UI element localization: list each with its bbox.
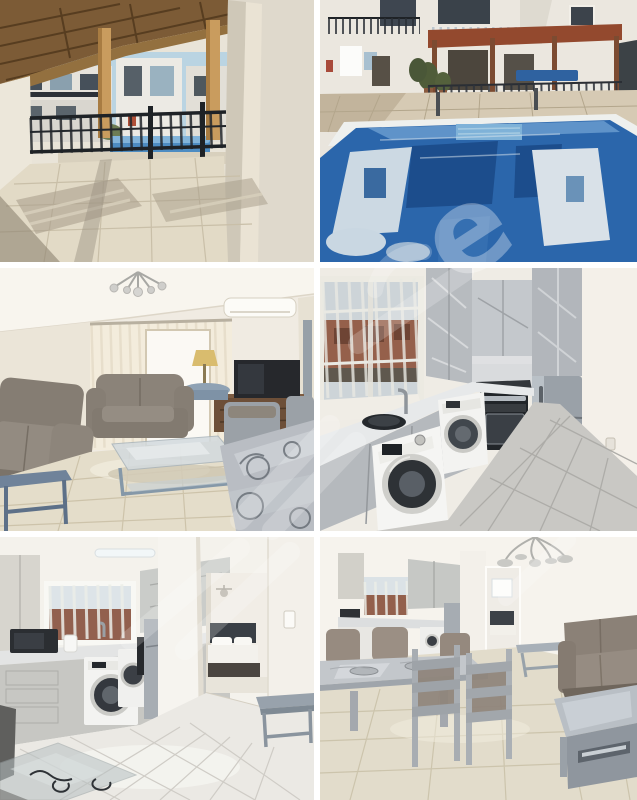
upper-cabinets [426, 268, 582, 390]
air-conditioner [224, 298, 296, 317]
bedroom-doorway-2 [486, 567, 520, 653]
photo-collage: e [0, 0, 637, 800]
photo-terrace[interactable] [0, 0, 314, 262]
photo-dining-area[interactable] [320, 537, 637, 800]
photo-living-room[interactable] [0, 268, 314, 531]
bedroom-doorway [206, 573, 268, 693]
loveseat [86, 374, 194, 438]
dining-table-cloth [220, 396, 314, 531]
photo-kitchen-hall[interactable] [0, 537, 314, 800]
coffee-table-2 [554, 685, 637, 789]
washing-machine-small [438, 392, 488, 474]
barred-window [320, 276, 424, 422]
photo-pool[interactable] [320, 0, 637, 262]
thermostat [284, 611, 295, 628]
photo-kitchen[interactable] [320, 268, 637, 531]
pool-water [320, 114, 637, 262]
kettle [64, 635, 77, 652]
ceiling-light [95, 549, 155, 557]
sun-lounger [516, 70, 578, 81]
